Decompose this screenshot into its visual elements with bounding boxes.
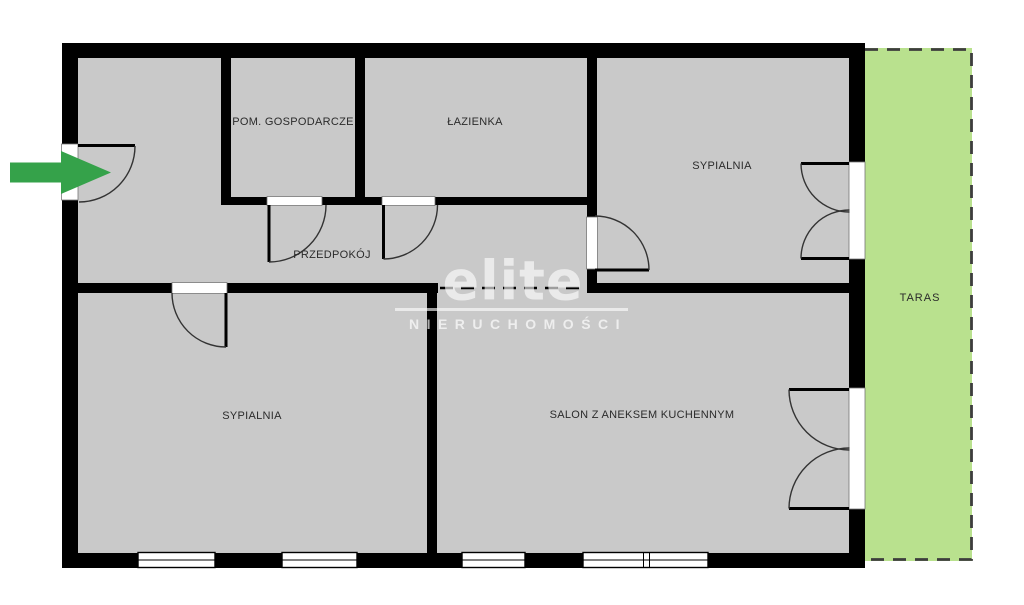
room-label-salon: SALON Z ANEKSEM KUCHENNYM	[550, 409, 735, 421]
terrace-area	[865, 48, 972, 561]
watermark-divider	[395, 308, 628, 311]
room-label-taras: TARAS	[900, 292, 941, 304]
watermark-subtitle: NIERUCHOMOŚCI	[409, 316, 627, 332]
watermark-brand: elite	[442, 250, 583, 313]
room-label-sypialnia-dolna: SYPIALNIA	[222, 410, 282, 422]
room-label-sypialnia-gorna: SYPIALNIA	[692, 160, 752, 172]
floor-plan: POM. GOSPODARCZE ŁAZIENKA SYPIALNIA PRZE…	[0, 0, 1024, 605]
room-label-lazienka: ŁAZIENKA	[447, 116, 503, 128]
room-label-pom-gospodarcze: POM. GOSPODARCZE	[232, 116, 354, 128]
room-label-przedpokoj: PRZEDPOKÓJ	[293, 249, 371, 261]
